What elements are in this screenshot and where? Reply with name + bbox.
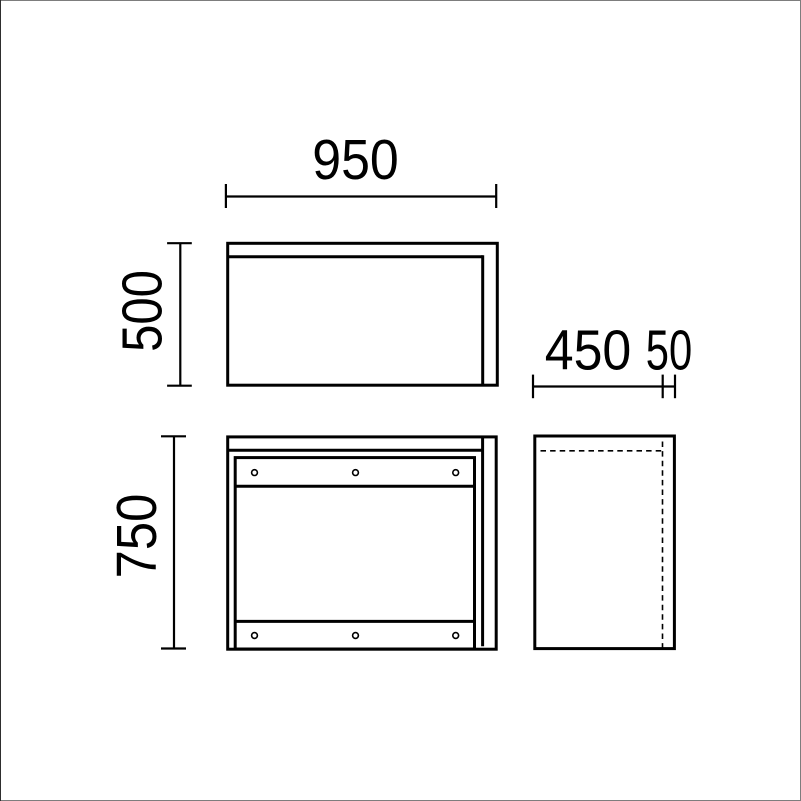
svg-text:950: 950 <box>312 129 399 191</box>
svg-text:450: 450 <box>545 320 632 382</box>
svg-text:500: 500 <box>111 270 174 352</box>
svg-text:50: 50 <box>646 318 692 382</box>
svg-text:750: 750 <box>106 494 169 579</box>
